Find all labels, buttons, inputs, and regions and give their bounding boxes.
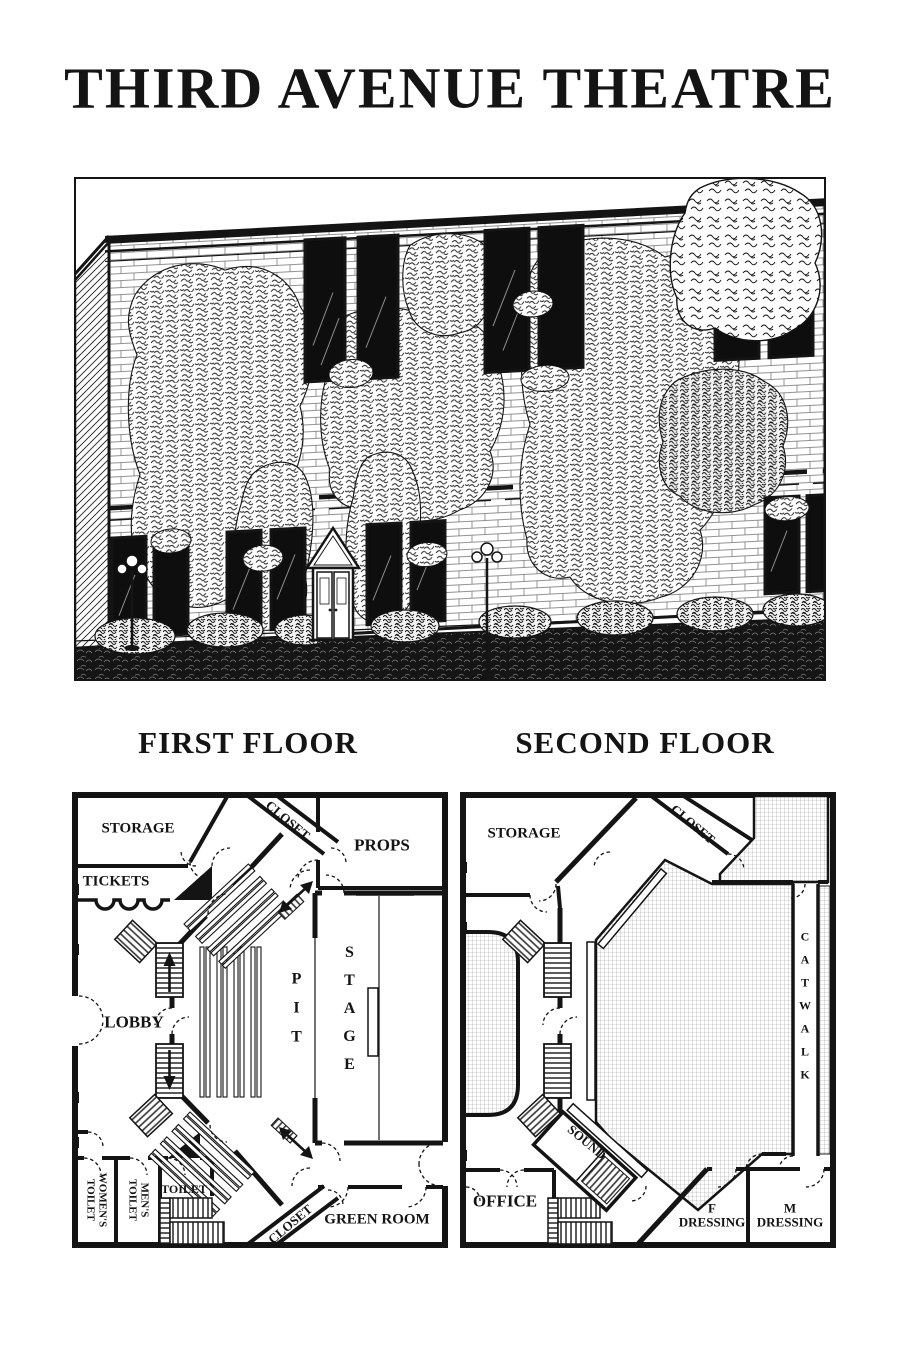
first-floor-heading: FIRST FLOOR <box>138 725 358 761</box>
facade-illustration <box>75 178 825 680</box>
pit-ramp-lower <box>271 1118 313 1159</box>
room-label-office: OFFICE <box>473 1193 537 1210</box>
room-label-lobby: LOBBY <box>104 1014 164 1031</box>
second-floor-plan-svg <box>460 792 836 1248</box>
void-hatch-top-right <box>720 796 828 882</box>
stage-piano <box>368 988 378 1056</box>
side-building <box>75 242 109 648</box>
stairs-upper <box>115 920 183 997</box>
room-label-pit: PIT <box>288 971 304 1058</box>
room-label-tickets: TICKETS <box>83 875 150 890</box>
room-label-storage: STORAGE <box>101 822 174 837</box>
tree-right <box>670 178 821 340</box>
second-floor-plan: STORAGE CLOSET CATWALK SOUND OFFICE FDRE… <box>460 792 836 1248</box>
room-label-stage: STAGE <box>341 944 357 1084</box>
room-label-toilet: TOILET <box>161 1183 207 1195</box>
room-label-green-room: GREEN ROOM <box>324 1213 429 1228</box>
room-label-m-dressing: MDRESSING <box>757 1201 823 1228</box>
first-floor-plan: STORAGE TICKETS CLOSET PROPS LOBBY PIT S… <box>72 792 448 1248</box>
void-hatch-right <box>818 886 830 1154</box>
page-title: THIRD AVENUE THEATRE <box>64 55 836 122</box>
stairs-lower <box>130 1044 183 1137</box>
balcony-void <box>464 932 518 1115</box>
room-label-storage-2: STORAGE <box>487 827 560 842</box>
facade-drawing <box>75 178 825 680</box>
second-floor-heading: SECOND FLOOR <box>515 725 774 761</box>
pit-ramp-upper <box>278 881 313 919</box>
theatre-poster: THIRD AVENUE THEATRE <box>0 0 900 1350</box>
room-label-f-dressing: FDRESSING <box>679 1201 745 1228</box>
room-label-catwalk: CATWALK <box>799 930 811 1091</box>
room-label-womens-toilet: WOMEN'STOILET <box>84 1173 107 1227</box>
room-label-props: PROPS <box>354 837 410 854</box>
seating-center <box>200 947 261 1097</box>
room-label-mens-toilet: MEN'STOILET <box>126 1179 149 1221</box>
